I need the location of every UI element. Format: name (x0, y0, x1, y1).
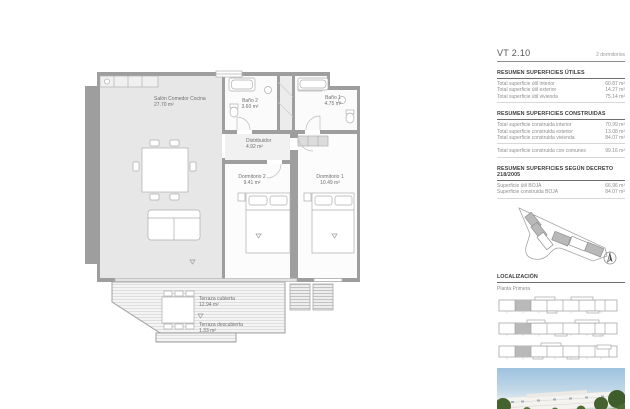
block-strip-plan-3 (497, 341, 625, 361)
localizacion-heading: LOCALIZACIÓN (497, 274, 625, 283)
decreto-rows: Superficie útil BOJA 66.96 m² Superficie… (497, 181, 625, 199)
room-label-dormitorio1: Dormitorio 1 10.49 m² (310, 174, 350, 187)
info-panel: VT 2.10 2 dormitorios RESUMEN SUPERFICIE… (497, 48, 625, 409)
site-key-plan (497, 206, 625, 268)
room-label-bano2: Baño 2 3.60 m² (235, 98, 265, 111)
construidas-rows: Total superficie construida interior 70.… (497, 120, 625, 144)
plan-sheet: Salón Comedor Cocina 27.70 m² Baño 2 3.6… (0, 0, 630, 409)
kitchen-counter (100, 76, 158, 87)
block-strip-plan-2 (497, 318, 625, 338)
section-heading-construidas: RESUMEN SUPERFICIES CONSTRUIDAS (497, 111, 625, 120)
unit-code: VT 2.10 (497, 48, 530, 58)
block-strip-plan-1 (497, 295, 625, 315)
unit-type: 2 dormitorios (596, 52, 625, 58)
floor-plan: Salón Comedor Cocina 27.70 m² Baño 2 3.6… (80, 62, 370, 352)
dining-table (133, 140, 196, 200)
site-buildings (525, 212, 604, 257)
room-label-distribuidor: Distribuidor 4.92 m² (246, 138, 271, 151)
room-label-terraza-cubierta: Terraza cubierta 12.94 m² (199, 296, 235, 309)
room-label-salon: Salón Comedor Cocina 27.70 m² (154, 96, 206, 109)
building-photo (497, 368, 625, 409)
north-arrow-icon (604, 252, 616, 264)
room-label-bano1: Baño 1 4.75 m² (318, 95, 348, 108)
utiles-rows: Total superficie útil interior 60.87 m² … (497, 79, 625, 103)
room-label-dormitorio2: Dormitorio 2 9.41 m² (232, 174, 272, 187)
room-label-terraza-descubierta: Terraza descubierta 1.33 m² (199, 322, 243, 335)
floor-name: Planta Primera (497, 286, 625, 292)
sofa (148, 210, 200, 240)
table-row: Total superficie construida vivienda 84.… (497, 135, 625, 141)
unit-title-row: VT 2.10 2 dormitorios (497, 48, 625, 62)
section-heading-utiles: RESUMEN SUPERFICIES ÚTILES (497, 70, 625, 79)
table-row: Superficie construida BOJA 84.07 m² (497, 189, 625, 195)
table-row: Total superficie construida con comunes … (497, 148, 625, 154)
section-heading-decreto: RESUMEN SUPERFICIES SEGÚN DECRETO 218/20… (497, 166, 625, 181)
table-row: Total superficie útil vivienda 75.14 m² (497, 94, 625, 100)
construidas-comunes-row: Total superficie construida con comunes … (497, 146, 625, 157)
